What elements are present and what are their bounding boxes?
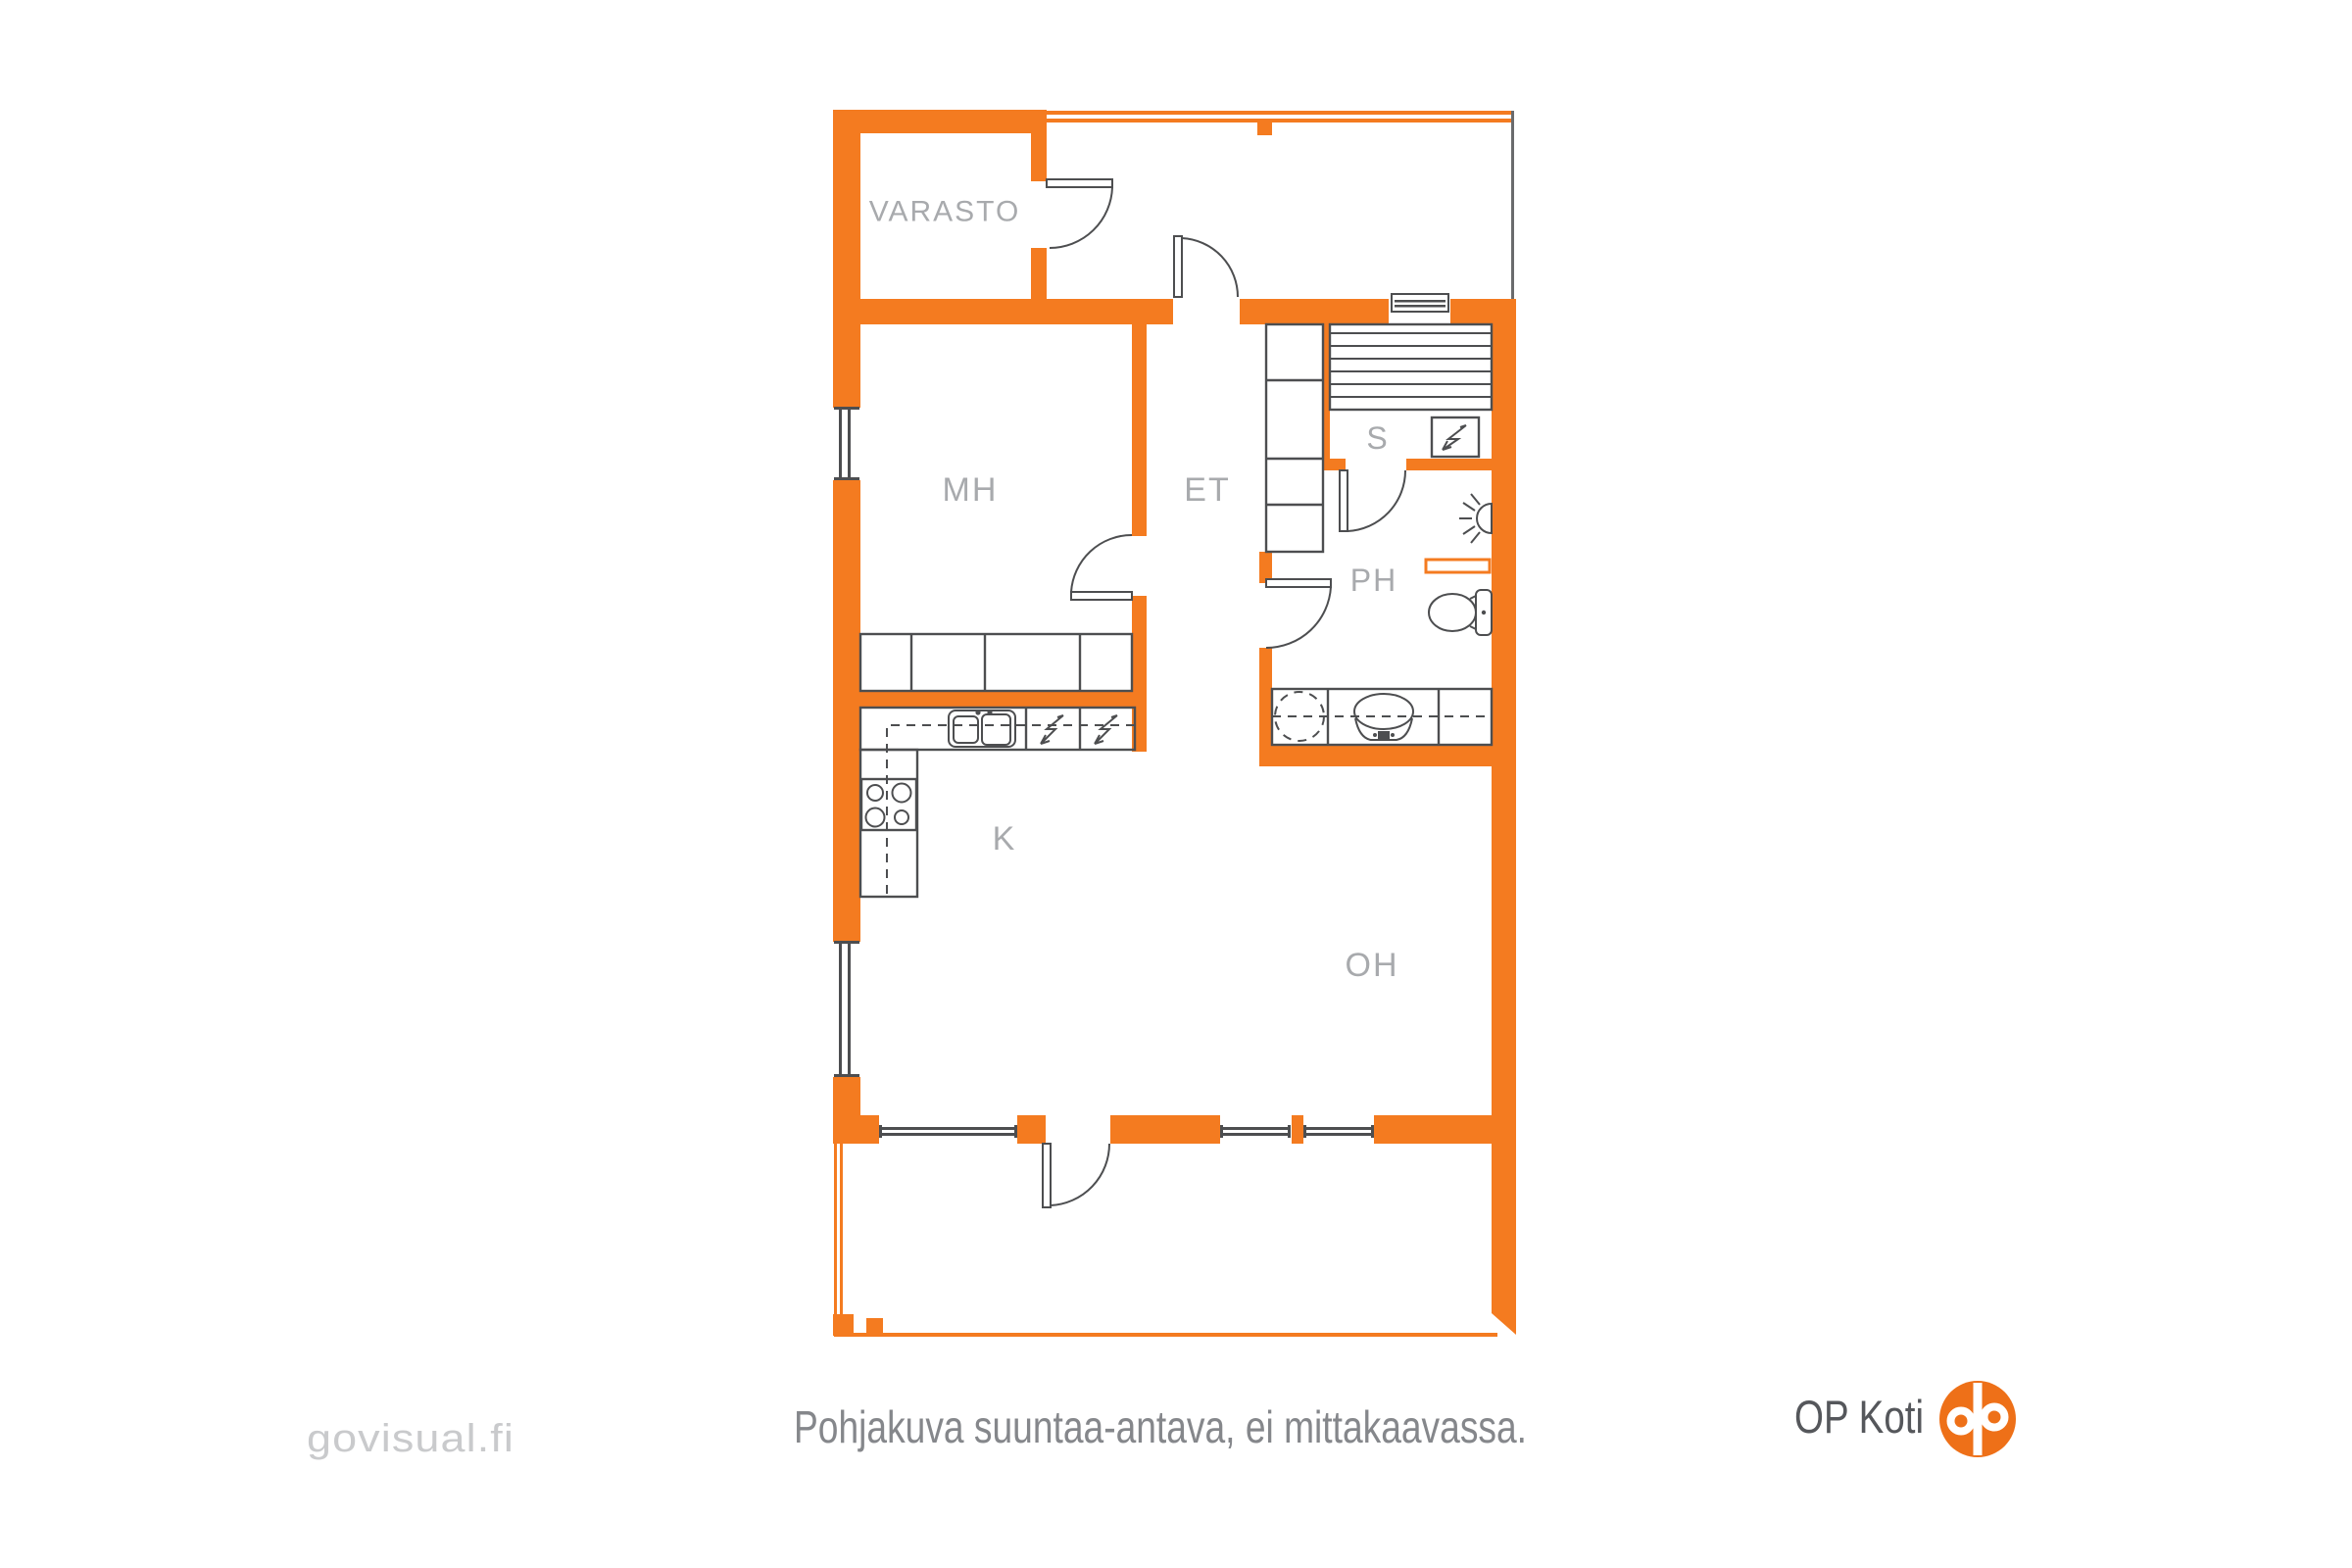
- terrace-door-opening: [1046, 1115, 1110, 1144]
- room-label-oh: OH: [1346, 947, 1399, 984]
- exterior-wall-right: [1492, 299, 1516, 1144]
- porch-edge-line-inner: [1047, 119, 1514, 122]
- terrace-edge-bottom: [834, 1333, 1497, 1337]
- terrace-door-leaf: [1043, 1144, 1051, 1207]
- shower-icon: [1459, 494, 1492, 543]
- wall-ph-bottom: [1259, 745, 1516, 766]
- ph-door-arc: [1266, 587, 1331, 648]
- porch-edge-line-right: [1511, 111, 1514, 299]
- mh-door: [1071, 535, 1132, 600]
- varasto-door: [1047, 179, 1112, 248]
- floor-plan: VARASTO MH ET S PH K OH Pohjakuva suunta…: [0, 0, 2352, 1568]
- mh-door-leaf: [1071, 592, 1132, 600]
- mh-wardrobe-icon: [860, 634, 1132, 691]
- sauna-door-arc: [1347, 470, 1405, 531]
- kitchen-sink-icon: [949, 710, 1015, 747]
- op-koti-brand: OP Koti: [1794, 1381, 2016, 1457]
- dishwasher-lightning-icon: [1041, 715, 1063, 744]
- disclaimer-caption: Pohjakuva suuntaa-antava, ei mittakaavas…: [794, 1401, 1527, 1452]
- oh-west-window-opening: [833, 942, 860, 1077]
- fixtures: [860, 324, 1492, 897]
- towel-rail-icon: [1426, 560, 1490, 572]
- et-closet-icon: [1266, 324, 1323, 552]
- sauna-vent-icon: [1392, 294, 1448, 312]
- sauna-door-opening: [1346, 459, 1406, 470]
- stove-burners-icon: [861, 779, 916, 830]
- washing-machine-icon: [1275, 692, 1324, 741]
- varasto-wall-top: [833, 110, 1047, 133]
- ph-door-opening: [1259, 583, 1272, 648]
- wall-mh-kitchen: [858, 691, 1135, 708]
- room-label-k: K: [993, 820, 1017, 857]
- footer: Pohjakuva suuntaa-antava, ei mittakaavas…: [307, 1381, 2016, 1460]
- porch-edge-line-outer: [1047, 111, 1514, 115]
- front-door-arc: [1182, 238, 1238, 297]
- room-label-et: ET: [1184, 471, 1230, 509]
- varasto-door-opening: [1031, 181, 1047, 248]
- terrace-post-corner: [833, 1314, 854, 1336]
- room-label-ph: PH: [1350, 563, 1397, 598]
- sauna-door-leaf: [1340, 470, 1347, 531]
- terrace-door: [1043, 1144, 1109, 1207]
- terrace-door-arc: [1051, 1144, 1109, 1205]
- sauna-stove-icon: [1432, 417, 1479, 457]
- mh-door-arc: [1071, 535, 1132, 592]
- sauna-benches-icon: [1330, 324, 1492, 410]
- porch-post: [1257, 120, 1272, 135]
- varasto-door-arc: [1050, 187, 1112, 248]
- terrace-edge-left-outer: [834, 1144, 837, 1336]
- ph-door-leaf: [1266, 579, 1331, 587]
- front-door-opening: [1173, 299, 1240, 324]
- room-label-mh: MH: [943, 471, 999, 509]
- terrace-post-small: [866, 1318, 883, 1334]
- ph-door: [1266, 579, 1331, 648]
- terrace-wall-right: [1492, 1144, 1516, 1335]
- terrace-edge-left-inner: [840, 1144, 843, 1336]
- op-koti-wordmark: OP Koti: [1794, 1391, 1924, 1443]
- front-door: [1174, 236, 1238, 297]
- mh-door-opening: [1132, 536, 1147, 596]
- floorplan-page: VARASTO MH ET S PH K OH Pohjakuva suunta…: [0, 0, 2352, 1568]
- wall-mh-hall-upper: [1132, 324, 1147, 536]
- varasto-door-leaf: [1047, 179, 1112, 187]
- toilet-icon: [1429, 590, 1492, 635]
- front-door-leaf: [1174, 236, 1182, 297]
- room-label-varasto: VARASTO: [869, 196, 1021, 228]
- oven-lightning-icon: [1095, 715, 1117, 744]
- room-label-s: S: [1366, 420, 1389, 456]
- watermark-govisual: govisual.fi: [307, 1417, 514, 1460]
- op-logo-icon: [1939, 1381, 2016, 1457]
- mh-window-opening: [833, 408, 860, 480]
- sauna-door: [1340, 470, 1405, 531]
